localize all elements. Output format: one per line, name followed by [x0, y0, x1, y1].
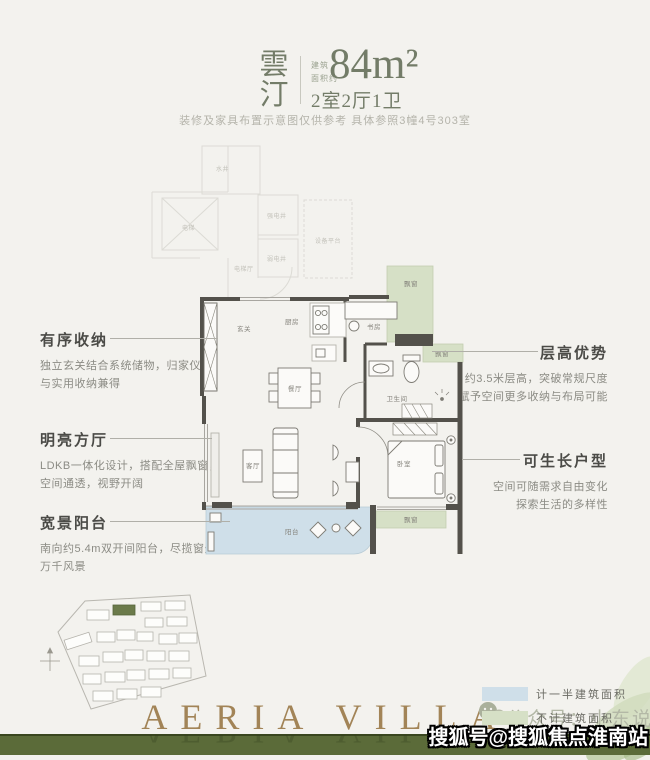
bay-window-label-1: 飘窗	[404, 279, 418, 288]
kitchen-counter-icon	[310, 303, 346, 361]
bathroom-label: 卫生间	[387, 394, 408, 403]
kitchen-label: 厨房	[285, 317, 299, 326]
legend-label-half-area: 计一半建筑面积	[536, 686, 627, 702]
study-label: 书房	[367, 322, 381, 331]
legend-swatch-blue	[482, 687, 528, 701]
legend-item-half-area: 计一半建筑面积	[482, 686, 627, 702]
common-area-outline	[152, 146, 352, 299]
area-value: 84m²	[329, 40, 418, 89]
site-highlighted-building	[113, 605, 135, 615]
project-name: 雲汀	[256, 50, 292, 111]
callout-line-balcony	[110, 521, 230, 522]
unit-layout: 2室2厅1卫	[311, 86, 403, 113]
balcony-label: 阳台	[285, 527, 299, 536]
site-buildings	[64, 601, 197, 701]
sofa-icon	[211, 428, 359, 498]
bay-window-label-3: 飘窗	[404, 515, 418, 524]
compass-icon	[40, 648, 60, 671]
water-well-label: 水井	[216, 165, 229, 173]
header-divider	[300, 56, 301, 104]
callout-line-flexible	[462, 459, 520, 460]
callout-line-ceiling	[432, 351, 538, 352]
watermark-text: 搜狐号@搜狐焦点淮南站	[428, 721, 648, 750]
elevator-hall-label: 电梯厅	[234, 265, 254, 273]
equip-platform-label: 设备平台	[315, 237, 341, 245]
living-label: 客厅	[246, 461, 260, 470]
callout-line-storage	[110, 338, 218, 339]
weak-elec-label: 弱电井	[267, 255, 287, 263]
disclaimer-text: 装修及家具布置示意图仅供参考 具体参照3幢4号303室	[0, 112, 650, 128]
callout-line-living	[110, 438, 212, 439]
floor-plan: 水井 电梯 强电井 弱电井 设备平台 电梯厅	[140, 140, 475, 565]
elevator-label: 电梯	[182, 224, 195, 232]
bedroom-label: 卧室	[397, 459, 411, 468]
dining-label: 餐厅	[288, 384, 302, 393]
bathroom-fixtures	[369, 355, 449, 418]
entry-label: 玄关	[237, 324, 251, 333]
strong-elec-label: 强电井	[267, 212, 287, 220]
entry-closet-icon	[204, 303, 217, 391]
floorplan-poster: 雲汀 建筑 面积约 84m² 2室2厅1卫 装修及家具布置示意图仅供参考 具体参…	[0, 0, 650, 760]
